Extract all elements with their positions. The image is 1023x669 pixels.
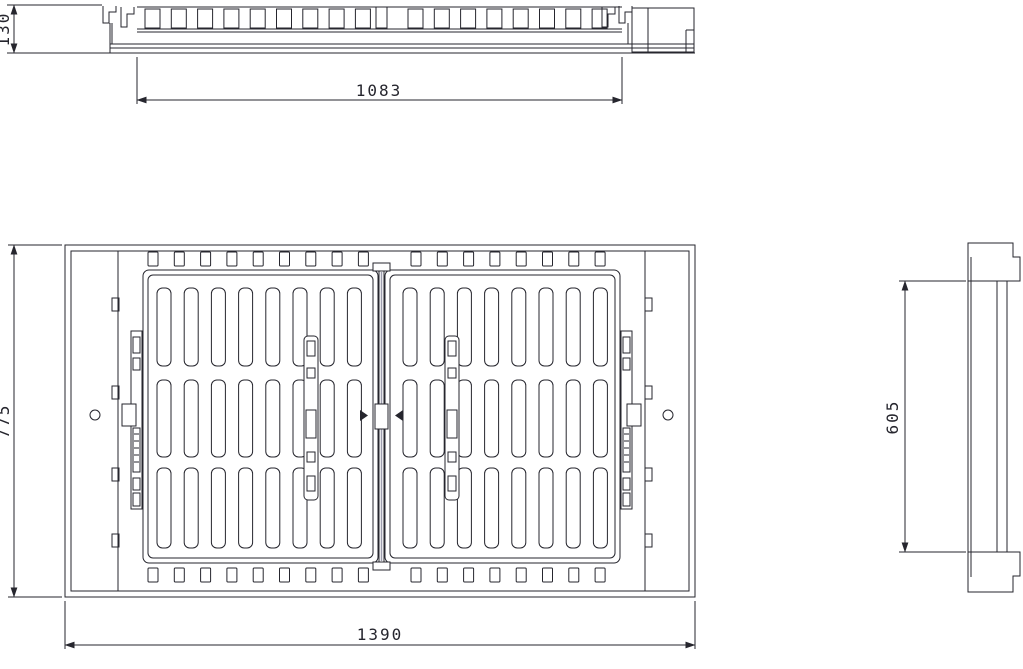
grate-leaf-right bbox=[385, 270, 620, 563]
grate-tooth bbox=[201, 252, 211, 266]
section-tooth bbox=[408, 9, 423, 28]
grate-tooth bbox=[306, 568, 316, 582]
dim-section-height: 130 bbox=[0, 5, 102, 53]
grate-slot bbox=[485, 468, 499, 548]
grate-tooth bbox=[174, 252, 184, 266]
grate-tooth bbox=[595, 568, 605, 582]
section-tooth bbox=[277, 9, 292, 28]
section-tooth bbox=[145, 9, 160, 28]
section-tooth bbox=[171, 9, 186, 28]
grate-tooth bbox=[516, 252, 526, 266]
dim-overall-width: 1390 bbox=[65, 601, 695, 649]
grate-leaf-right-inner bbox=[390, 275, 615, 558]
grate-tooth bbox=[358, 568, 368, 582]
grate-slot bbox=[320, 380, 334, 457]
latch-tab bbox=[122, 404, 136, 426]
grate-slot bbox=[403, 468, 417, 548]
section-tooth bbox=[513, 9, 528, 28]
grate-tooth bbox=[148, 568, 158, 582]
grate-slot bbox=[512, 468, 526, 548]
grate-slot bbox=[347, 380, 361, 457]
grate-slot bbox=[266, 288, 280, 366]
frame-right-block-step bbox=[686, 30, 694, 52]
grate-slot bbox=[566, 380, 580, 457]
grate-tooth bbox=[595, 252, 605, 266]
lug bbox=[645, 298, 652, 311]
grate-tooth bbox=[253, 568, 263, 582]
grate-slot bbox=[512, 380, 526, 457]
section-tooth bbox=[329, 9, 344, 28]
grate-tooth bbox=[516, 568, 526, 582]
grate-tooth bbox=[543, 252, 553, 266]
joint-arrow-left bbox=[360, 410, 368, 421]
grate-slot bbox=[211, 288, 225, 366]
joint-bottom-bump bbox=[373, 562, 390, 570]
grate-slot bbox=[539, 380, 553, 457]
joint-arrow-right bbox=[395, 410, 403, 421]
grate-tooth bbox=[306, 252, 316, 266]
grate-slot bbox=[266, 468, 280, 548]
lug bbox=[645, 534, 652, 547]
latch-left bbox=[122, 331, 142, 509]
technical-drawing-page: 130 1083 bbox=[0, 0, 1023, 664]
dim-label: 1390 bbox=[357, 625, 404, 644]
grate-tooth bbox=[174, 568, 184, 582]
grate-tooth bbox=[411, 568, 421, 582]
grate-slot bbox=[266, 380, 280, 457]
grate-slot bbox=[593, 468, 607, 548]
grate-slot bbox=[430, 380, 444, 457]
dim-grate-width: 1083 bbox=[137, 57, 622, 104]
grate-tooth bbox=[253, 252, 263, 266]
grate-slot bbox=[485, 288, 499, 366]
grate-slot bbox=[239, 380, 253, 457]
side-view bbox=[968, 243, 1020, 592]
bolt-hole-left bbox=[90, 410, 100, 420]
grate-tooth bbox=[437, 252, 447, 266]
section-tooth bbox=[566, 9, 581, 28]
grate-tooth bbox=[332, 568, 342, 582]
grate-tooth bbox=[280, 252, 290, 266]
grate-slot bbox=[539, 468, 553, 548]
grate-slot bbox=[347, 468, 361, 548]
section-tooth bbox=[540, 9, 555, 28]
dim-label: 130 bbox=[0, 12, 13, 47]
grate-tooth bbox=[569, 568, 579, 582]
side-profile-outline bbox=[968, 243, 1020, 592]
grate-slot bbox=[512, 288, 526, 366]
section-tooth bbox=[198, 9, 213, 28]
frame-right-hook bbox=[619, 6, 632, 23]
grate-slot bbox=[566, 468, 580, 548]
grate-tooth bbox=[490, 252, 500, 266]
grate-slot bbox=[593, 380, 607, 457]
section-tooth bbox=[434, 9, 449, 28]
grate-tooth bbox=[332, 252, 342, 266]
grate-slot bbox=[320, 468, 334, 548]
latch-tab bbox=[627, 404, 641, 426]
grate-leaf-left-inner bbox=[148, 275, 373, 558]
section-tooth bbox=[592, 9, 607, 28]
grate-slot bbox=[184, 380, 198, 457]
grate-assembly-drawing: 130 1083 bbox=[0, 0, 1023, 664]
grate-tooth bbox=[227, 252, 237, 266]
grate-right-hook bbox=[602, 7, 615, 27]
grate-slot bbox=[430, 288, 444, 366]
grate-slot bbox=[157, 468, 171, 548]
grate-slot bbox=[320, 288, 334, 366]
grate-slot bbox=[184, 468, 198, 548]
grate-slot bbox=[593, 288, 607, 366]
dim-label: 775 bbox=[0, 404, 13, 439]
grate-slot bbox=[211, 380, 225, 457]
grate-tooth bbox=[543, 568, 553, 582]
center-joint bbox=[360, 263, 403, 570]
grate-slot bbox=[157, 380, 171, 457]
grate-slot bbox=[184, 288, 198, 366]
grate-tooth bbox=[148, 252, 158, 266]
section-view bbox=[7, 6, 695, 53]
lug bbox=[645, 468, 652, 481]
bolt-hole-right bbox=[663, 410, 673, 420]
grate-slot bbox=[539, 288, 553, 366]
section-tooth bbox=[487, 9, 502, 28]
grate-slot bbox=[403, 288, 417, 366]
grate-tooth bbox=[464, 252, 474, 266]
dim-side-height: 605 bbox=[883, 281, 966, 552]
grate-tooth bbox=[411, 252, 421, 266]
grate-slot bbox=[566, 288, 580, 366]
grate-tooth bbox=[201, 568, 211, 582]
section-tooth bbox=[461, 9, 476, 28]
grate-tooth bbox=[490, 568, 500, 582]
section-center-notch bbox=[376, 7, 387, 28]
frame-right-block bbox=[632, 8, 694, 52]
grate-slot bbox=[239, 288, 253, 366]
grate-tooth bbox=[569, 252, 579, 266]
lug bbox=[645, 386, 652, 399]
dim-label: 605 bbox=[883, 400, 902, 435]
section-tooth bbox=[303, 9, 318, 28]
grate-slot bbox=[485, 380, 499, 457]
lifting-bar-left bbox=[304, 336, 318, 500]
grate-tooth bbox=[358, 252, 368, 266]
grate-left-hook bbox=[121, 7, 134, 27]
joint-hinge-block bbox=[375, 404, 388, 429]
section-tooth bbox=[250, 9, 265, 28]
grate-leaf-left bbox=[143, 270, 378, 563]
grate-slots-left bbox=[157, 288, 361, 548]
lifting-bar-right bbox=[445, 336, 459, 500]
plan-view bbox=[65, 245, 695, 597]
section-tooth bbox=[355, 9, 370, 28]
section-tooth bbox=[224, 9, 239, 28]
grate-slot bbox=[157, 288, 171, 366]
grate-tooth bbox=[464, 568, 474, 582]
grate-tooth bbox=[280, 568, 290, 582]
grate-tooth bbox=[437, 568, 447, 582]
joint-top-bump bbox=[373, 263, 390, 271]
latch-right bbox=[621, 331, 641, 509]
grate-slot bbox=[239, 468, 253, 548]
grate-slot bbox=[403, 380, 417, 457]
grate-slots-right bbox=[403, 288, 607, 548]
grate-slot bbox=[430, 468, 444, 548]
frame-left-hook bbox=[103, 6, 116, 23]
dim-overall-depth: 775 bbox=[0, 245, 62, 597]
grate-slot bbox=[347, 288, 361, 366]
grate-tooth bbox=[227, 568, 237, 582]
dim-label: 1083 bbox=[356, 81, 403, 100]
grate-slot bbox=[211, 468, 225, 548]
